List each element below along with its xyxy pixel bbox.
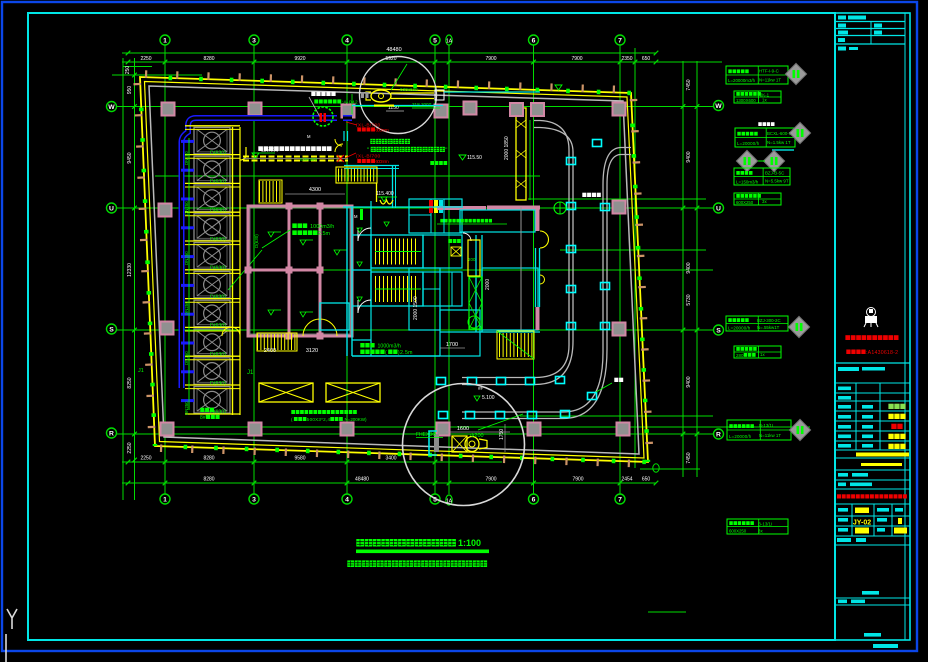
svg-text:1000m3/h: 1000m3/h (310, 224, 334, 230)
svg-text:600X250: 600X250 (736, 200, 754, 205)
svg-text:N=11kw 1T: N=11kw 1T (759, 78, 781, 83)
svg-text:7900: 7900 (571, 56, 582, 62)
svg-text:8280: 8280 (203, 56, 214, 62)
svg-text:2250: 2250 (127, 442, 133, 453)
svg-text:3x: 3x (762, 199, 767, 204)
svg-text:2250: 2250 (140, 456, 151, 462)
svg-text:2.5m: 2.5m (318, 231, 331, 237)
svg-text:1A: 1A (446, 39, 453, 45)
svg-text:(: ( (385, 350, 387, 356)
svg-text:6: 6 (532, 37, 536, 44)
svg-text:250: 250 (125, 66, 131, 75)
svg-text:2350: 2350 (621, 56, 632, 62)
svg-text::A1430618-2: :A1430618-2 (866, 350, 898, 356)
svg-text:R: R (716, 431, 721, 438)
svg-text:9400: 9400 (686, 262, 692, 273)
svg-text:,N=200KW): ,N=200KW) (343, 417, 367, 422)
svg-text:4300: 4300 (309, 187, 321, 193)
svg-text:115.530: 115.530 (261, 148, 279, 154)
svg-text:B-13/1I: B-13/1I (759, 423, 773, 428)
svg-text:D(630): D(630) (210, 323, 226, 329)
svg-text:280: 280 (736, 353, 744, 358)
svg-text:D(630): D(630) (210, 381, 226, 387)
svg-text::A-042: :A-042 (342, 100, 358, 106)
svg-text:600mm: 600mm (375, 159, 388, 165)
svg-text:1: 1 (163, 37, 167, 44)
svg-text:JY-02: JY-02 (853, 520, 871, 527)
svg-text:D(630): D(630) (210, 352, 226, 358)
svg-text:L=20000/h: L=20000/h (729, 434, 752, 439)
svg-text:3x: 3x (758, 529, 763, 534)
svg-text:1000m3/h: 1000m3/h (378, 344, 401, 350)
svg-text:": " (445, 148, 447, 154)
svg-text:6: 6 (532, 496, 536, 503)
svg-text:J1: J1 (247, 370, 254, 376)
svg-text:)2.5m: )2.5m (398, 350, 413, 356)
svg-text:7900: 7900 (572, 477, 583, 483)
svg-text:1750: 1750 (499, 429, 505, 440)
svg-text:1700: 1700 (446, 342, 458, 348)
svg-text:Φ200: Φ200 (470, 433, 484, 439)
svg-text:D(630): D(630) (210, 237, 226, 243)
svg-text:D(630): D(630) (210, 179, 226, 185)
svg-text:(XL-B/700: (XL-B/700 (356, 154, 381, 160)
svg-text:9400: 9400 (686, 151, 692, 162)
svg-text:U: U (716, 205, 721, 212)
svg-text:FHEX8Φ: FHEX8Φ (416, 432, 436, 438)
svg-text:2000 1500: 2000 1500 (413, 296, 419, 320)
svg-text:3400: 3400 (385, 456, 396, 462)
svg-text:HTF-I-9-C: HTF-I-9-C (759, 69, 779, 74)
svg-text:4: 4 (345, 37, 349, 44)
svg-text:12330: 12330 (127, 263, 133, 277)
svg-text:S: S (109, 326, 114, 333)
svg-text:7900: 7900 (485, 56, 496, 62)
svg-text:R: R (109, 430, 114, 437)
svg-text:L=150m3/h: L=150m3/h (736, 179, 759, 184)
svg-text:D(630): D(630) (254, 234, 259, 248)
svg-text:5730: 5730 (686, 294, 692, 305)
svg-text:1x: 1x (760, 352, 765, 357)
svg-text:4: 4 (345, 496, 349, 503)
svg-text:S: S (716, 327, 721, 334)
svg-text:9920: 9920 (294, 56, 305, 62)
svg-text:650: 650 (642, 477, 651, 483)
svg-text:N=1.5kw 1T: N=1.5kw 1T (767, 140, 791, 145)
svg-text:115.400: 115.400 (376, 191, 394, 197)
svg-text:48480: 48480 (386, 47, 401, 53)
svg-text:2400: 2400 (264, 348, 276, 354)
svg-text:DN250: DN250 (184, 201, 189, 215)
svg-text:630x500: 630x500 (300, 157, 318, 162)
svg-text:M: M (307, 134, 311, 139)
svg-text:2000: 2000 (485, 279, 491, 290)
svg-text:2250: 2250 (140, 56, 151, 62)
svg-text:5.100: 5.100 (482, 395, 495, 401)
svg-text:115.50: 115.50 (467, 155, 482, 161)
svg-text:W: W (108, 104, 115, 111)
svg-text:": " (367, 148, 369, 154)
svg-text:L=20000m3/h: L=20000m3/h (728, 78, 756, 83)
svg-text:9450: 9450 (127, 152, 133, 163)
svg-text:1x: 1x (762, 98, 767, 103)
svg-text:B-13/1I: B-13/1I (758, 522, 772, 527)
svg-text:N=11kw 1T: N=11kw 1T (759, 433, 781, 438)
svg-text:7900: 7900 (485, 477, 496, 483)
svg-text:318,200T: 318,200T (412, 102, 432, 107)
svg-text:5: 5 (433, 37, 437, 44)
svg-text:8#: 8# (200, 415, 206, 421)
svg-text:BZJ-B-5C: BZJ-B-5C (765, 171, 784, 176)
svg-text:1: 1 (163, 496, 167, 503)
svg-text:600X250: 600X250 (729, 529, 747, 534)
svg-text:BZJ-300-2C: BZJ-300-2C (757, 318, 781, 323)
svg-text:2454: 2454 (621, 477, 632, 483)
svg-text:3: 3 (252, 37, 256, 44)
svg-text:#F: #F (478, 386, 484, 391)
svg-text:8250: 8250 (127, 377, 133, 388)
svg-text:7: 7 (618, 496, 622, 503)
svg-text:DN250: DN250 (184, 151, 189, 165)
svg-text:600mm: 600mm (375, 128, 388, 134)
svg-text:DN250: DN250 (184, 351, 189, 365)
svg-text:DN250: DN250 (184, 301, 189, 315)
svg-text:DN250: DN250 (184, 251, 189, 265)
svg-text:3120: 3120 (306, 348, 318, 354)
svg-text:1:100: 1:100 (458, 538, 481, 548)
svg-text:U: U (109, 205, 114, 212)
svg-text:8280: 8280 (203, 477, 214, 483)
svg-text:7450: 7450 (686, 79, 692, 90)
svg-text:7: 7 (618, 37, 622, 44)
svg-text:650: 650 (642, 56, 651, 62)
svg-text:D(630): D(630) (210, 150, 226, 156)
svg-text:950: 950 (127, 86, 133, 95)
svg-text:2000 1850: 2000 1850 (504, 136, 510, 160)
svg-text:3: 3 (252, 496, 256, 503)
svg-text:1600: 1600 (457, 426, 469, 432)
svg-text:200: 200 (468, 257, 476, 262)
svg-text:L=20000/h: L=20000/h (737, 141, 760, 146)
svg-text:W: W (715, 103, 722, 110)
svg-text:DN250: DN250 (184, 401, 189, 415)
svg-text:L=20000/h: L=20000/h (728, 326, 751, 331)
svg-text:630x630: 630x630 (400, 87, 418, 92)
svg-text:N=5.5kw 9T: N=5.5kw 9T (765, 179, 789, 184)
svg-text:9400: 9400 (686, 376, 692, 387)
svg-text:7450: 7450 (686, 452, 692, 463)
svg-text:1300X600: 1300X600 (736, 98, 756, 103)
svg-text:D(630): D(630) (210, 208, 226, 214)
svg-text:9580: 9580 (294, 456, 305, 462)
svg-text:J1: J1 (138, 368, 144, 374)
svg-text:48480: 48480 (355, 477, 369, 483)
svg-text:500X3*2,4: 500X3*2,4 (307, 417, 331, 422)
svg-text:N=.55kw1T: N=.55kw1T (757, 325, 780, 330)
svg-text:D(630): D(630) (210, 294, 226, 300)
svg-text:M: M (354, 214, 358, 219)
svg-text:8280: 8280 (203, 456, 214, 462)
svg-text:D(630): D(630) (210, 266, 226, 272)
